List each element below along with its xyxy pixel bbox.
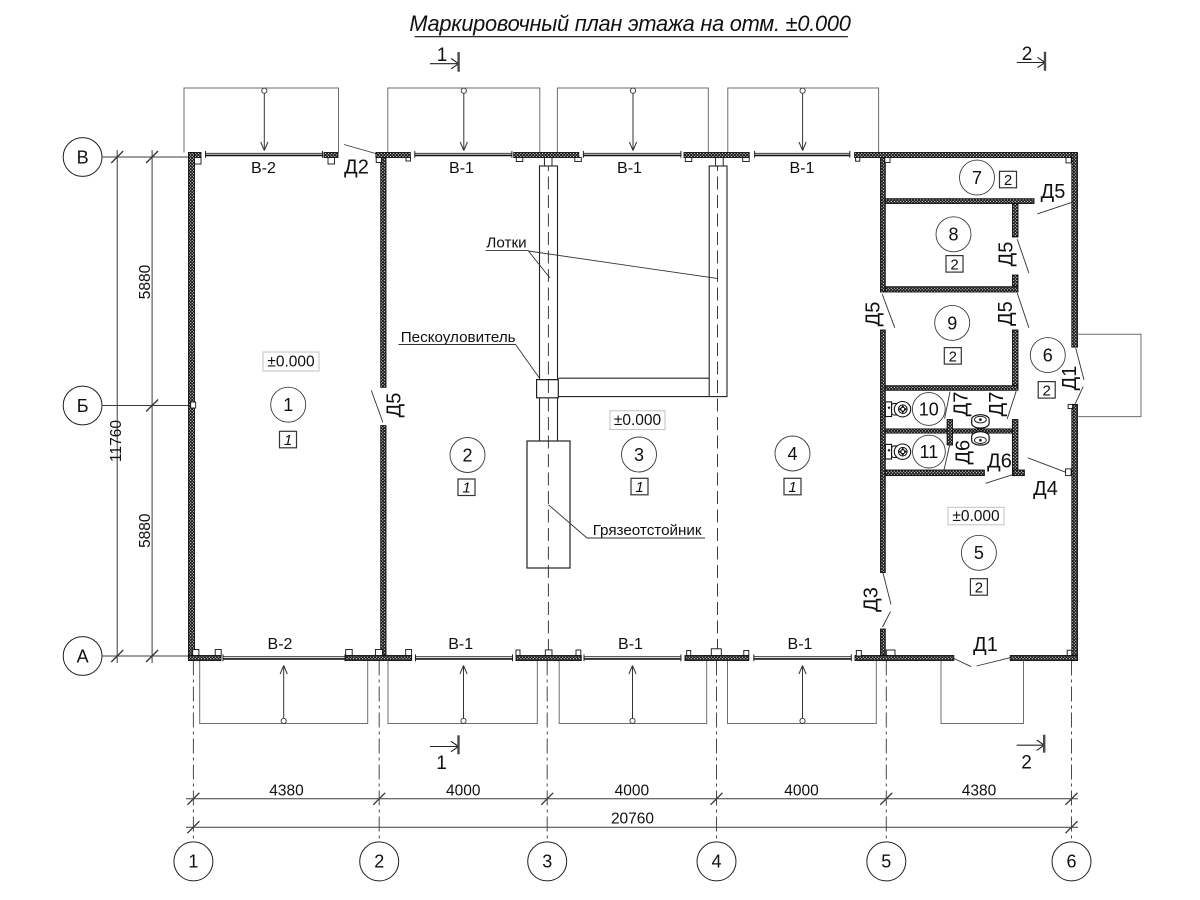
svg-text:±0.000: ±0.000 [267,353,315,370]
svg-text:Б: Б [77,396,89,416]
svg-text:Д6: Д6 [987,450,1012,472]
svg-text:1: 1 [436,753,447,774]
svg-text:2: 2 [462,445,472,465]
svg-text:Д3: Д3 [861,587,883,612]
svg-text:2: 2 [949,348,957,365]
svg-text:1: 1 [462,480,470,497]
svg-text:В: В [77,147,89,167]
svg-text:Д7: Д7 [986,392,1008,417]
svg-text:1: 1 [788,479,796,496]
svg-text:2: 2 [1004,172,1012,189]
svg-text:4380: 4380 [269,782,304,799]
svg-text:1: 1 [437,45,448,66]
svg-text:Д5: Д5 [1041,181,1066,203]
svg-text:11: 11 [920,442,939,462]
svg-text:2: 2 [1022,44,1033,65]
svg-text:Д5: Д5 [995,301,1017,326]
svg-text:10: 10 [919,399,939,419]
svg-text:2: 2 [950,256,958,273]
svg-text:4000: 4000 [446,782,481,799]
svg-text:2: 2 [1043,382,1051,399]
svg-text:В-2: В-2 [251,160,276,177]
svg-text:Д5: Д5 [384,393,406,418]
svg-text:6: 6 [1066,852,1076,872]
svg-text:5: 5 [974,543,984,563]
svg-text:7: 7 [972,168,982,188]
svg-text:4380: 4380 [962,782,997,799]
svg-text:4000: 4000 [784,782,819,799]
svg-text:Д1: Д1 [973,634,998,656]
svg-text:4: 4 [711,852,721,872]
svg-text:Д1: Д1 [1059,366,1081,391]
svg-text:1: 1 [188,852,198,872]
svg-text:В-1: В-1 [617,160,642,177]
svg-text:4: 4 [787,444,797,464]
svg-text:±0.000: ±0.000 [614,412,662,429]
svg-text:В-1: В-1 [790,160,815,177]
svg-text:11760: 11760 [108,420,125,462]
svg-text:4000: 4000 [615,782,650,799]
svg-text:2: 2 [975,579,983,596]
svg-text:А: А [77,646,89,666]
svg-text:3: 3 [542,852,552,872]
svg-text:5880: 5880 [137,513,154,548]
svg-text:Лотки: Лотки [486,234,526,251]
svg-text:20760: 20760 [611,811,654,828]
svg-text:Пескоуловитель: Пескоуловитель [401,329,516,346]
svg-text:Маркировочный план этажа на от: Маркировочный план этажа на отм. ±0.000 [409,11,850,36]
svg-text:1: 1 [635,479,643,496]
svg-text:Д5: Д5 [996,242,1018,267]
svg-text:5: 5 [881,852,891,872]
svg-text:2: 2 [1021,753,1032,774]
svg-text:1: 1 [284,432,292,449]
svg-text:5880: 5880 [137,264,154,299]
svg-text:3: 3 [634,445,644,465]
svg-text:В-1: В-1 [448,636,473,653]
svg-text:Д4: Д4 [1033,478,1058,500]
svg-text:9: 9 [947,313,957,333]
svg-text:В-1: В-1 [618,636,643,653]
svg-text:2: 2 [374,852,384,872]
svg-text:1: 1 [283,395,293,415]
svg-text:В-2: В-2 [268,636,293,653]
svg-text:Д5: Д5 [863,302,885,327]
svg-text:6: 6 [1043,346,1053,366]
svg-text:Д6: Д6 [953,440,975,465]
svg-text:В-1: В-1 [788,636,813,653]
svg-text:В-1: В-1 [449,160,474,177]
svg-text:Д2: Д2 [344,157,369,179]
svg-text:Грязеотстойник: Грязеотстойник [593,522,702,539]
svg-text:±0.000: ±0.000 [952,508,1000,525]
svg-text:Д7: Д7 [951,392,973,417]
svg-text:8: 8 [948,225,958,245]
